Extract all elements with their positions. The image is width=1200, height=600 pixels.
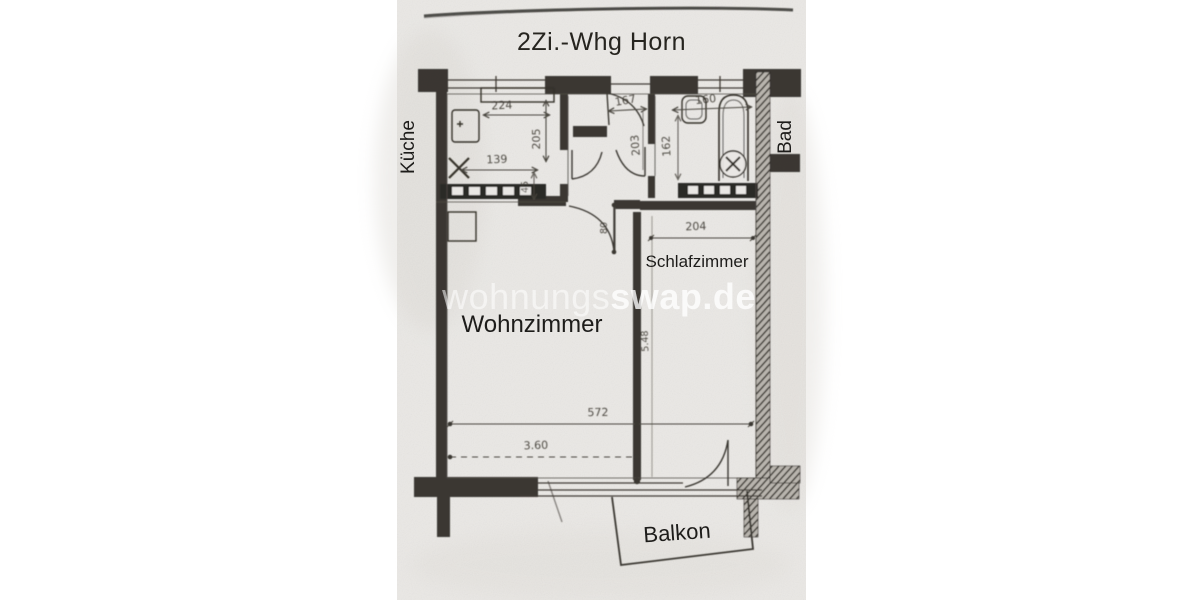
- floorplan-screenshot: 224 167 160 205 139 203 162 45 80 204 57…: [0, 0, 1200, 600]
- wall-left-extension: [437, 497, 450, 537]
- dim-living-width: 3.60: [523, 439, 548, 453]
- dim-kitchen-depth: 205: [530, 129, 543, 150]
- room-label-bedroom: Schlafzimmer: [646, 252, 749, 272]
- dim-hall-depth: 203: [628, 134, 643, 156]
- wall-bottom-left: [414, 477, 538, 497]
- dim-room-depth: 5.48: [640, 330, 652, 352]
- hall-closet-block: [573, 126, 607, 137]
- dim-apartment-width: 572: [587, 406, 608, 419]
- room-label-kitchen: Küche: [398, 120, 420, 174]
- dim-kitchen-width: 224: [491, 98, 513, 112]
- wall-living-door-jamb: [614, 200, 640, 209]
- dim-living-door-width: 80: [599, 222, 610, 234]
- room-label-balcony: Balkon: [643, 518, 712, 549]
- wall-hall-bath-upper: [648, 94, 655, 144]
- wall-top-right-corner: [743, 69, 801, 97]
- wall-right-stub-lower: [770, 466, 800, 483]
- wall-top-segment-b: [650, 76, 698, 94]
- wall-top-segment-a: [545, 76, 611, 94]
- dim-bedroom-width: 204: [685, 220, 706, 234]
- dim-bath-width: 160: [695, 92, 717, 107]
- wall-kitchen-hall-upper: [560, 94, 568, 150]
- wall-bedroom-top: [640, 201, 757, 210]
- wall-right-stub-upper: [770, 154, 800, 172]
- wall-kitchen-hall-lower: [560, 184, 568, 202]
- watermark: wohnungsswap.de: [442, 276, 756, 318]
- plan-title: 2Zi.-Whg Horn: [397, 28, 806, 57]
- dim-kitchen-inner-width: 139: [486, 153, 507, 167]
- watermark-left-part: wohnungs: [442, 276, 610, 317]
- wall-hall-bath-lower: [648, 176, 655, 198]
- dim-bath-depth: 162: [659, 135, 673, 157]
- watermark-right-part: swap.de: [610, 276, 756, 317]
- room-label-bath: Bad: [775, 120, 797, 154]
- dim-kitchen-passage: 45: [520, 181, 531, 193]
- wall-right: [756, 72, 770, 478]
